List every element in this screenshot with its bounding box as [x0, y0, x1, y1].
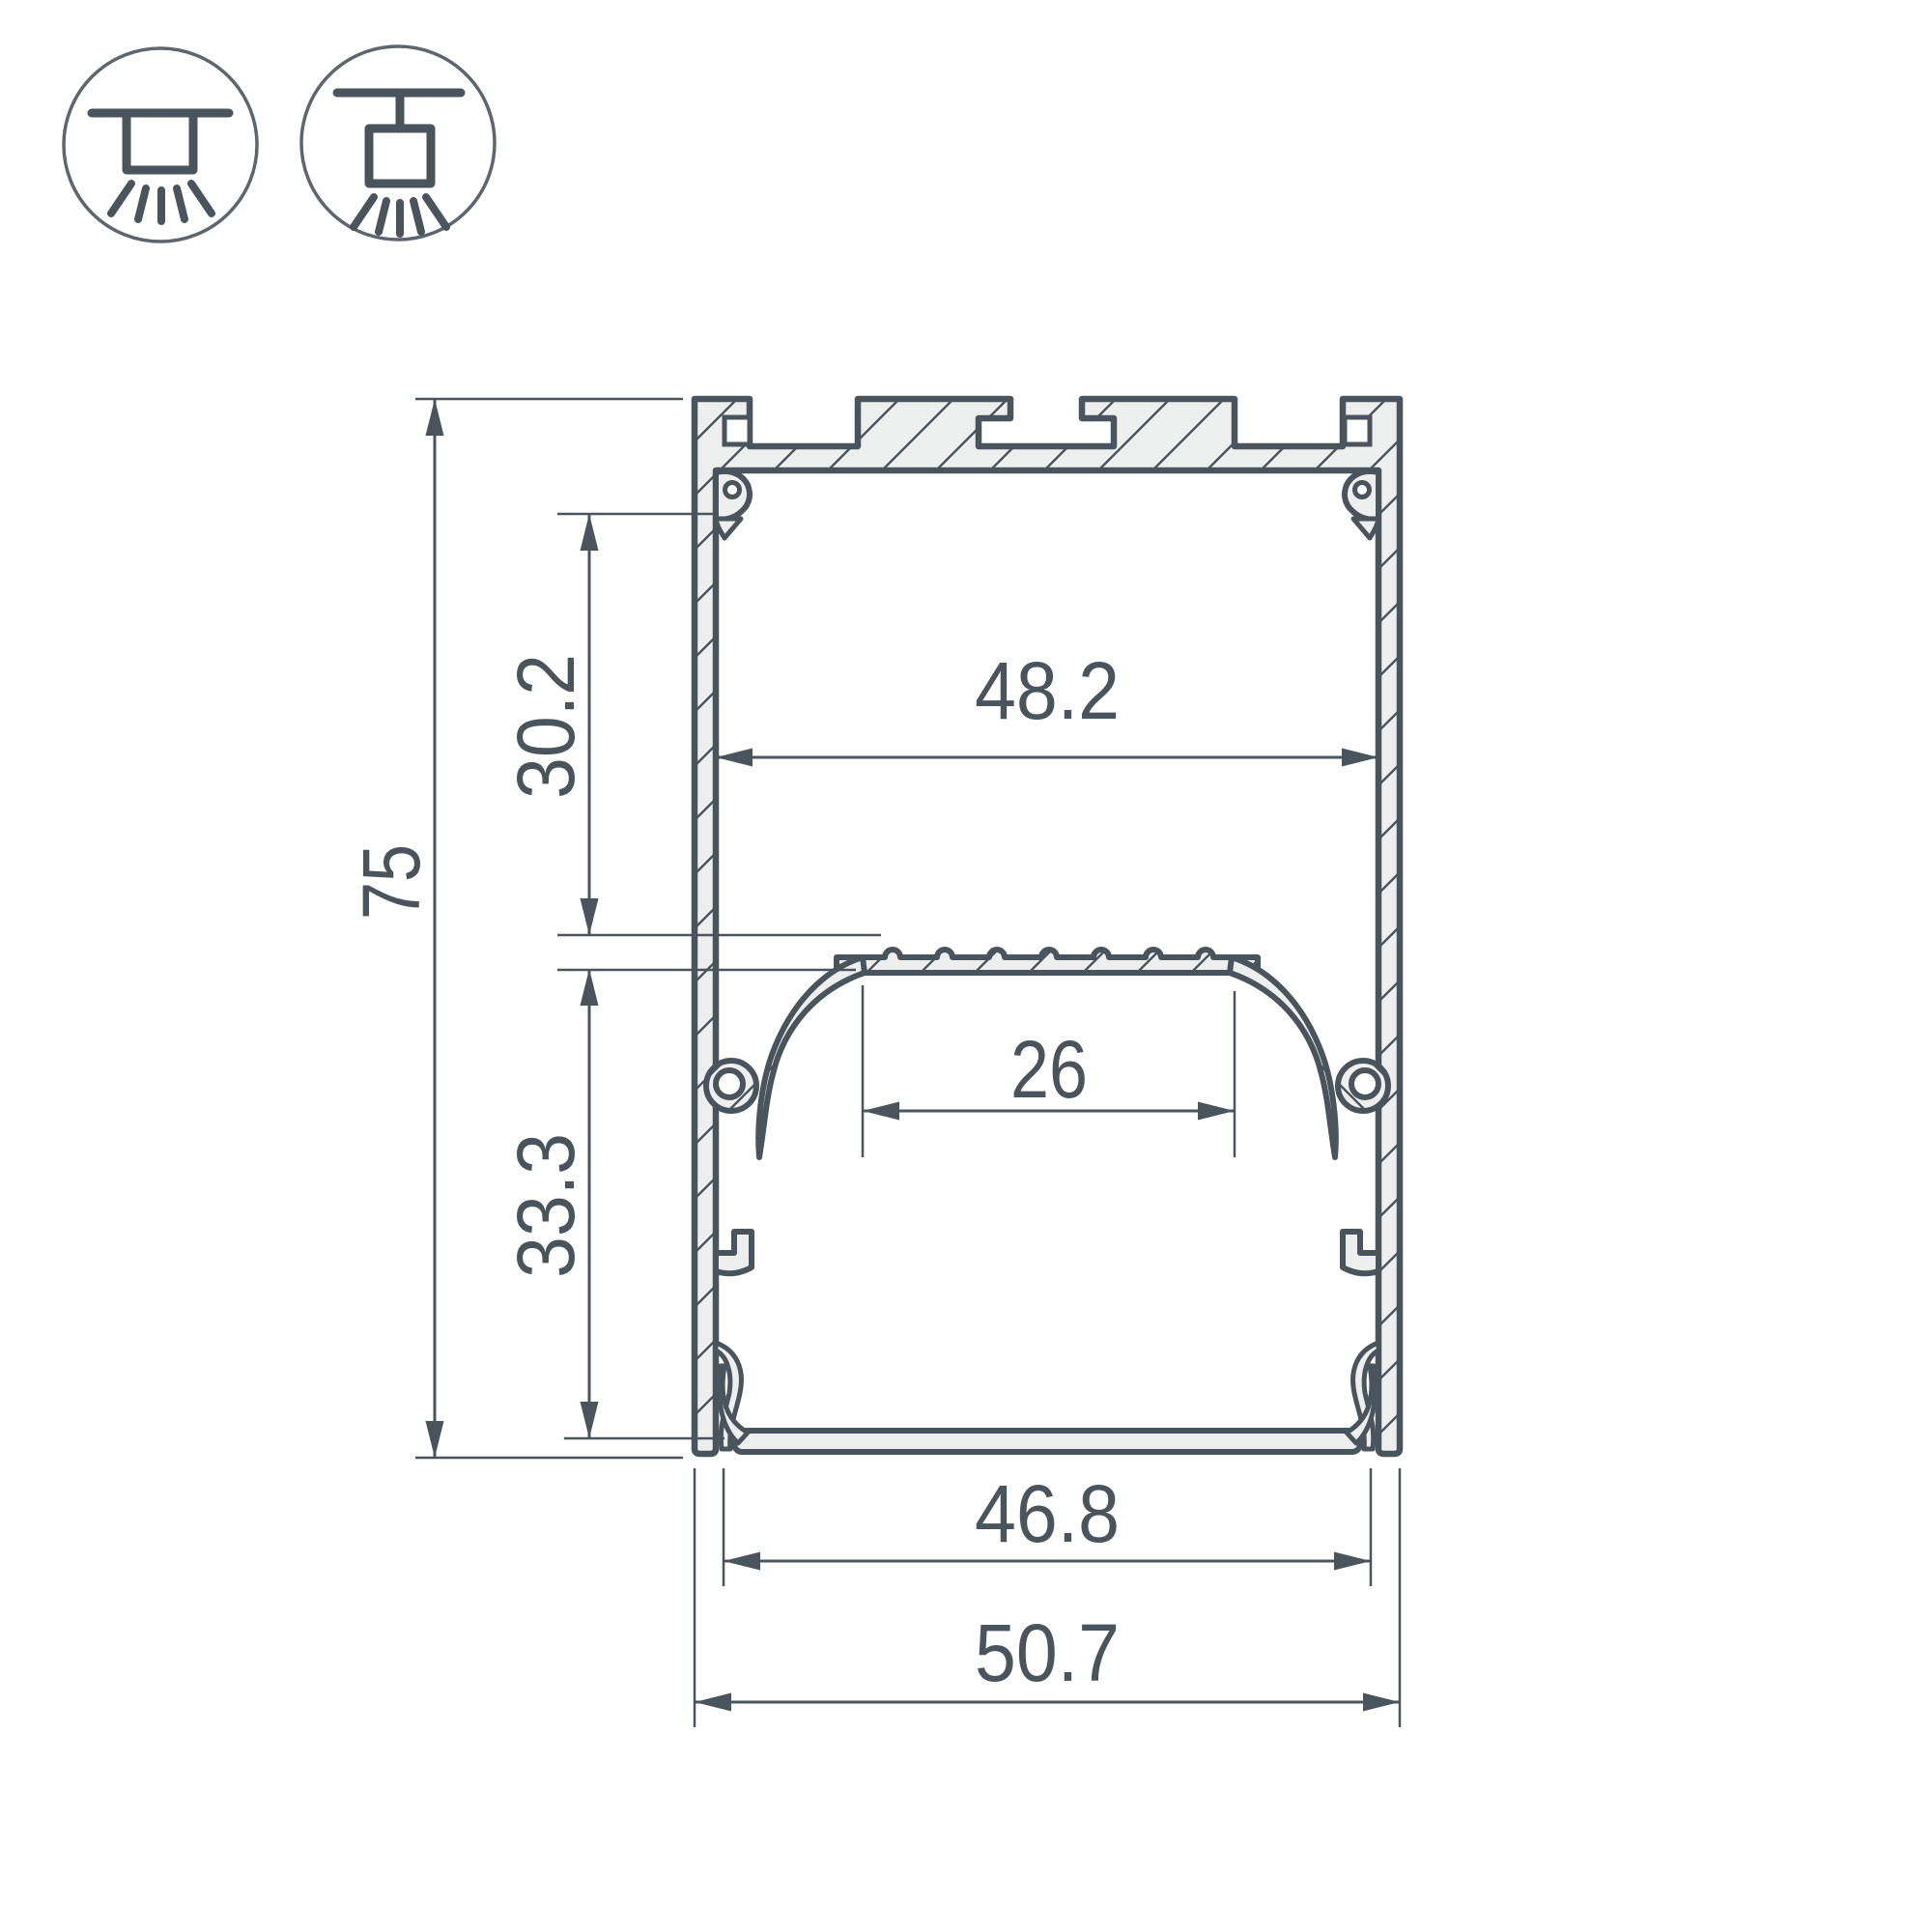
- dim-label-upper-chamber-height: 30.2: [500, 654, 591, 799]
- profile-outline: [695, 399, 1400, 1454]
- dim-label-overall-height: 75: [346, 844, 437, 920]
- lip-notch-right: [1345, 417, 1370, 444]
- dim-label-diffuser-width: 46.8: [975, 1468, 1120, 1559]
- lip-notch-left: [724, 417, 750, 444]
- dim-label-overall-width: 50.7: [975, 1607, 1120, 1698]
- led-shelf: [837, 950, 1258, 973]
- profile-body: [695, 399, 1400, 1454]
- extension-lines: [415, 399, 1400, 1727]
- pendant-suspension-mount-icon: [301, 46, 495, 240]
- dim-label-inner-width: 48.2: [975, 645, 1120, 736]
- surface-ceiling-mount-icon: [64, 48, 257, 241]
- dim-label-lower-chamber-height: 33.3: [500, 1133, 591, 1278]
- dimension-lines: [435, 399, 1400, 1702]
- dimension-arrowheads: [426, 399, 1401, 1712]
- profile-cross-section-drawing: 75 30.2 33.3 48.2 26 46.8 50.7: [0, 0, 1932, 1932]
- dim-label-led-shelf-width: 26: [1010, 1024, 1088, 1115]
- drawing-canvas: 75 30.2 33.3 48.2 26 46.8 50.7: [0, 0, 1932, 1932]
- diffuser-plate: [734, 1431, 1360, 1452]
